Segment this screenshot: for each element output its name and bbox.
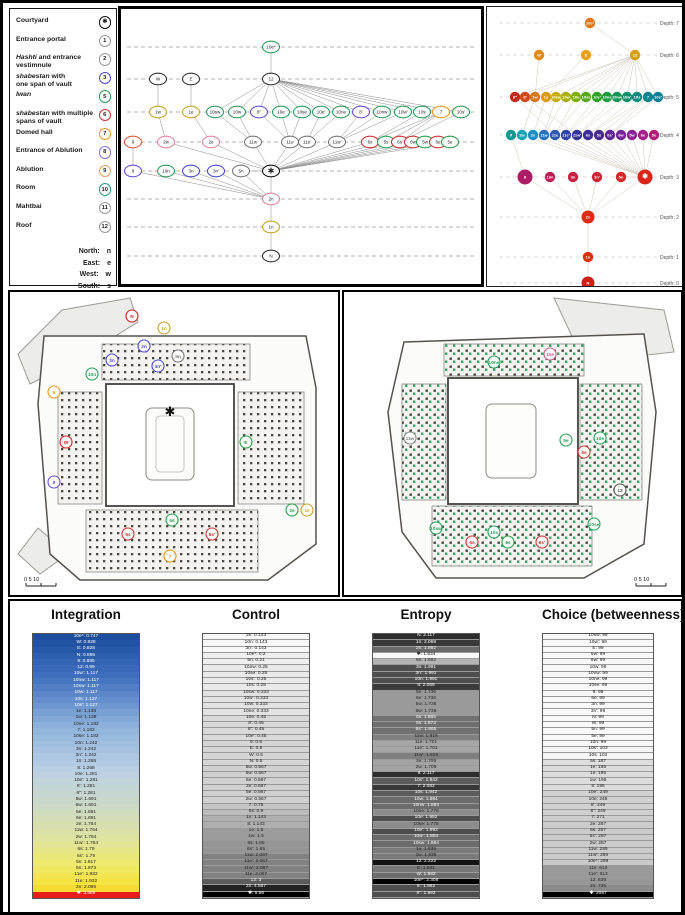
graph-node-10e: 10e [273, 106, 290, 118]
legend-item: Mahtbai11 [16, 202, 111, 221]
legend-item-symbol: 11 [99, 202, 112, 215]
graph-node-5w: 5w [627, 130, 637, 140]
graph-node-8: 8 [518, 170, 533, 185]
graph-node-5s: 5s [594, 130, 604, 140]
entropy-title: Entropy [372, 607, 480, 622]
svg-text:6e: 6e [581, 450, 587, 456]
legend-item: Domed hall7 [16, 128, 111, 147]
graph-node-8'': 8″ [510, 92, 520, 102]
graph-node-3n: 3n [568, 172, 578, 182]
graph-node-11e': 11e′ [561, 130, 571, 140]
svg-text:7: 7 [169, 554, 172, 560]
graph-node-10w: 10w [561, 92, 571, 102]
graph-node-3n': 3n′ [592, 172, 602, 182]
legend-item-symbol: ✱ [99, 16, 112, 29]
legend-item-symbol: 1 [99, 35, 112, 48]
graph-node-10w': 10w′ [622, 92, 632, 102]
floor-plan-upper-drawing: 11e10ne11w5e6e10e1210s6s5s6s′10sw10se 0 … [344, 292, 680, 594]
graph-node-2n: 2n [582, 211, 595, 224]
legend-items: Courtyard✱Entrance portal1Hashti and ent… [16, 16, 111, 239]
plan-label-3n': 3n′ [152, 360, 164, 372]
graph-node-10s': 10s′ [653, 92, 663, 102]
graph-node-10n: 10n [158, 165, 175, 177]
svg-text:10w′: 10w′ [398, 110, 407, 115]
table-row: 8″: 1.992 [373, 892, 479, 898]
legend-item-symbol: 2 [99, 53, 112, 66]
legend-item-label: Domed hall [16, 128, 53, 137]
legend-item: Iwan5 [16, 90, 111, 109]
plan-label-6s: 6s [122, 528, 134, 540]
svg-text:3n′: 3n′ [155, 364, 163, 370]
svg-text:6s′: 6s′ [539, 540, 546, 546]
svg-text:10w: 10w [233, 110, 242, 115]
svg-text:6e: 6e [435, 140, 441, 145]
graph-node-2e: 2e [528, 130, 538, 140]
plan-label-2n: 2n [138, 340, 150, 352]
graph-node-10e*: 10e* [263, 41, 280, 53]
graph-node-10s': 10s′ [453, 106, 470, 118]
graph-node-1w: 1w [530, 92, 540, 102]
legend-item-label: shabestan with one span of vault [16, 72, 72, 89]
legend-item-symbol: 3 [99, 72, 112, 85]
svg-text:8′: 8′ [523, 95, 526, 100]
graph-node-1w: 1w [150, 106, 167, 118]
legend-item: Room10 [16, 183, 111, 202]
svg-text:10nw: 10nw [377, 110, 389, 115]
graph-node-11e: 11e [282, 136, 299, 148]
svg-text:✱: ✱ [165, 404, 176, 419]
legend-item-symbol: 9 [99, 165, 112, 178]
plan-hall-south [432, 506, 592, 566]
legend-item: Courtyard✱ [16, 16, 111, 35]
plan-label-1n: 1n [158, 322, 170, 334]
integration-table: 10e*: 0.747W: 0.828E: 0.828N: 0.8959: 0.… [32, 633, 140, 899]
plan-label-5e: 5e [560, 434, 572, 446]
control-table: 3n: 0.14310n: 0.1433n′: 0.14310e*: 0.25n… [202, 633, 310, 899]
graph-node-9: 9 [125, 136, 142, 148]
svg-text:6s: 6s [368, 140, 374, 145]
control-column: Control 3n: 0.14310n: 0.1433n′: 0.14310e… [202, 607, 310, 899]
graph-node-11w': 11w′ [572, 130, 582, 140]
svg-text:6s: 6s [469, 540, 475, 546]
tables-panel: Integration 10e*: 0.747W: 0.828E: 0.828N… [8, 599, 683, 914]
graph-node-10w': 10w′ [395, 106, 412, 118]
graph-node-11e: 11e [550, 130, 560, 140]
svg-text:10w′: 10w′ [623, 95, 632, 100]
graph-node-1n: 1n [583, 252, 593, 262]
graph-node-5n: 5n [616, 172, 626, 182]
graph-node-3n': 3n′ [208, 165, 225, 177]
graph-node-10e': 10e′ [313, 106, 330, 118]
control-title: Control [202, 607, 310, 622]
svg-text:6s′: 6s′ [397, 140, 403, 145]
graph-node-11w: 11w [245, 136, 262, 148]
legend-item-symbol: 12 [99, 221, 112, 234]
svg-text:10w: 10w [562, 95, 570, 100]
svg-text:10e: 10e [277, 110, 285, 115]
table-row: ✱: 2087 [543, 892, 653, 898]
legend-item: Entrance portal1 [16, 35, 111, 54]
plan-label-10ne: 10ne [488, 356, 500, 368]
svg-text:E: E [189, 77, 192, 82]
graph-node-10ne: 10ne [333, 106, 350, 118]
svg-text:3n: 3n [188, 169, 194, 174]
graph-node-6s: 6s [362, 136, 379, 148]
svg-text:2e: 2e [289, 508, 295, 514]
svg-text:2e: 2e [208, 140, 214, 145]
plan-label-6s': 6s′ [536, 536, 548, 548]
plan-label-5n: 5n [172, 350, 184, 362]
svg-text:5s: 5s [597, 133, 602, 138]
svg-text:11w′: 11w′ [573, 133, 581, 138]
svg-text:10ne: 10ne [336, 110, 347, 115]
graph-node-10se: 10se [294, 106, 311, 118]
graph-node-10nw: 10nw [374, 106, 391, 118]
graph-node-6w: 6w [616, 130, 626, 140]
svg-text:Depth: 1: Depth: 1 [660, 255, 679, 261]
plan-label-E: E [240, 436, 252, 448]
plan-label-11e: 11e [544, 348, 556, 360]
svg-text:Depth: 0: Depth: 0 [660, 281, 679, 286]
plan-scale-text: 0 5 10 [634, 577, 649, 583]
plan-label-N: N [126, 310, 138, 322]
figure-root: Courtyard✱Entrance portal1Hashti and ent… [0, 0, 685, 915]
legend-item-label: Entrance portal [16, 35, 66, 44]
plan-label-10se: 10se [588, 518, 600, 530]
svg-text:8′: 8′ [359, 110, 363, 115]
plan-label-10s: 10s [488, 526, 500, 538]
choice-column: Choice (betweenness) 10sw: 9910w′: 99E: … [542, 607, 654, 899]
svg-text:10s: 10s [634, 95, 641, 100]
svg-text:11e′: 11e′ [562, 133, 569, 138]
svg-text:5n: 5n [619, 175, 624, 180]
graph-node-5e: 5e [649, 130, 659, 140]
svg-text:10e′: 10e′ [593, 95, 601, 100]
svg-text:11e′: 11e′ [303, 140, 311, 145]
svg-text:6s: 6s [586, 133, 591, 138]
svg-text:5s: 5s [169, 518, 175, 524]
svg-text:10sw: 10sw [430, 526, 442, 532]
depth-graph-panel: Depth: 7Depth: 6Depth: 5Depth: 4Depth: 3… [486, 6, 685, 287]
svg-text:6s′: 6s′ [209, 532, 216, 538]
graph-node-W: W [150, 73, 167, 85]
svg-text:2w: 2w [519, 133, 525, 138]
svg-text:10sw: 10sw [210, 110, 221, 115]
legend-item-label: Iwan [16, 90, 31, 99]
graph-node-11w: 11w [539, 130, 549, 140]
graph-node-10sw: 10sw [207, 106, 224, 118]
svg-text:5e: 5e [652, 133, 657, 138]
svg-text:11e: 11e [552, 133, 559, 138]
svg-text:6s: 6s [125, 532, 131, 538]
plan-label-9: 9 [48, 386, 60, 398]
plan-label-3n: 3n [106, 354, 118, 366]
graph-node-5e: 5e [442, 136, 459, 148]
svg-text:Depth: 6: Depth: 6 [660, 53, 679, 59]
graph-node-7: 7 [433, 106, 450, 118]
svg-text:3n′: 3n′ [594, 175, 600, 180]
svg-text:6s′: 6s′ [607, 133, 612, 138]
legend-item: Roof12 [16, 221, 111, 240]
svg-text:6w: 6w [410, 140, 417, 145]
graph-node-8: 8 [125, 165, 142, 177]
table-row: ✱: 3.689 [33, 892, 139, 898]
plan-label-1e: 1e [301, 504, 313, 516]
graph-node-7: 7 [643, 92, 653, 102]
legend-direction: North:n [16, 246, 111, 258]
plan-label-8: 8 [48, 476, 60, 488]
graph-node-E: E [183, 73, 200, 85]
svg-text:W: W [156, 77, 161, 82]
integration-title: Integration [32, 607, 140, 622]
graph-node-5n: 5n [233, 165, 250, 177]
choice-table: 10sw: 9910w′: 99E: 995w: 996w: 9910w: 99… [542, 633, 654, 899]
svg-text:12: 12 [268, 77, 274, 82]
legend-item-label: Courtyard [16, 16, 48, 25]
svg-text:5w: 5w [629, 133, 635, 138]
plan-label-5s: 5s [166, 514, 178, 526]
legend-item: Entrance of Ablution8 [16, 146, 111, 165]
svg-text:10se: 10se [589, 522, 600, 528]
graph-node-8'': 8″ [251, 106, 268, 118]
svg-text:10n: 10n [162, 169, 170, 174]
svg-text:5e: 5e [447, 140, 453, 145]
svg-text:5e: 5e [563, 438, 569, 444]
legend-item-label: Mahtbai [16, 202, 42, 211]
plan-scale-bar: 0 5 10 [24, 577, 56, 586]
svg-text:N: N [587, 281, 590, 286]
graph-node-10e': 10e′ [592, 92, 602, 102]
svg-text:9: 9 [132, 140, 135, 145]
graph-node-6s': 6s′ [605, 130, 615, 140]
svg-text:6e: 6e [641, 133, 646, 138]
graph-node-12: 12 [630, 50, 640, 60]
graph-node-3n: 3n [183, 165, 200, 177]
plan-label-2e: 2e [286, 504, 298, 516]
svg-text:Depth: 7: Depth: 7 [660, 21, 679, 27]
plan-hall-north [444, 344, 584, 376]
graph-node-9: 9 [506, 130, 516, 140]
svg-text:1e: 1e [188, 110, 194, 115]
svg-text:E: E [585, 53, 588, 58]
plan-label-12: 12 [614, 484, 626, 496]
svg-text:W: W [537, 53, 541, 58]
plan-label-6s: 6s [466, 536, 478, 548]
graph-node-E: E [581, 50, 591, 60]
svg-text:10e*: 10e* [586, 21, 595, 26]
svg-text:10se: 10se [582, 95, 592, 100]
graph-node-N: N [263, 250, 280, 262]
floor-plan-ground: N1n2n3n3n′10n5n9W8✱E2e1e5s6s6s′7 0 5 10 [8, 290, 340, 597]
integration-column: Integration 10e*: 0.747W: 0.828E: 0.828N… [32, 607, 140, 899]
legend-item-label: Ablution [16, 165, 44, 174]
graph-node-6e: 6e [638, 130, 648, 140]
graph-node-N: N [582, 277, 595, 287]
svg-text:10e′: 10e′ [317, 110, 326, 115]
svg-text:1e: 1e [544, 95, 549, 100]
legend-item-label: Hashti and entrance vestimnule [16, 53, 97, 70]
graph-node-*: ✱ [638, 170, 653, 185]
svg-text:10s′: 10s′ [457, 110, 465, 115]
graph-node-2w: 2w [158, 136, 175, 148]
graph-node-2n: 2n [263, 193, 280, 205]
legend-direction: West:w [16, 269, 111, 281]
svg-text:10e: 10e [596, 436, 604, 442]
svg-text:5s: 5s [384, 140, 390, 145]
choice-title: Choice (betweenness) [542, 607, 654, 622]
plan-pool [486, 404, 536, 478]
svg-text:11w: 11w [540, 133, 548, 138]
legend-direction: East:e [16, 258, 111, 270]
graph-node-12: 12 [263, 73, 280, 85]
svg-text:10ne: 10ne [602, 95, 612, 100]
svg-text:3n: 3n [571, 175, 576, 180]
svg-text:10e: 10e [573, 95, 580, 100]
plan-label-11w: 11w [404, 432, 416, 444]
plan-label-W: W [60, 436, 72, 448]
svg-text:10ne: 10ne [489, 360, 500, 366]
svg-text:✱: ✱ [268, 167, 275, 176]
svg-text:11w: 11w [406, 436, 415, 442]
svg-text:6w: 6w [618, 133, 624, 138]
graph-node-*: ✱ [263, 165, 280, 177]
svg-text:3n′: 3n′ [213, 169, 219, 174]
legend-item-symbol: 8 [99, 146, 112, 159]
svg-text:N: N [130, 314, 134, 320]
svg-text:8″: 8″ [257, 110, 262, 115]
svg-text:7: 7 [440, 110, 443, 115]
svg-text:1n: 1n [586, 255, 591, 260]
graph-node-2w: 2w [517, 130, 527, 140]
graph-node-10nw: 10nw [612, 92, 623, 102]
graph-node-2e: 2e [203, 136, 220, 148]
svg-text:10sw: 10sw [551, 95, 562, 100]
svg-text:10e*: 10e* [266, 45, 276, 50]
svg-text:11e: 11e [286, 140, 294, 145]
svg-text:10s: 10s [490, 530, 498, 536]
svg-text:1w: 1w [155, 110, 162, 115]
svg-text:1n: 1n [268, 225, 274, 230]
graph-node-10se: 10se [581, 92, 591, 102]
plan-label-10e: 10e [594, 432, 606, 444]
graph-node-11e': 11e′ [299, 136, 316, 148]
graph-node-1e: 1e [541, 92, 551, 102]
legend-item-symbol: 5 [99, 90, 112, 103]
svg-text:1w: 1w [532, 95, 538, 100]
svg-text:10s′: 10s′ [654, 95, 662, 100]
svg-text:2n: 2n [586, 215, 591, 220]
legend-panel: Courtyard✱Entrance portal1Hashti and ent… [9, 8, 117, 286]
floor-plan-ground-drawing: N1n2n3n3n′10n5n9W8✱E2e1e5s6s6s′7 0 5 10 [10, 292, 337, 594]
svg-text:3n: 3n [109, 358, 115, 364]
svg-text:11w: 11w [249, 140, 258, 145]
legend-item: shabestan with one span of vault3 [16, 72, 111, 91]
svg-text:10s: 10s [418, 110, 426, 115]
graph-node-1n: 1n [263, 221, 280, 233]
svg-text:✱: ✱ [642, 173, 648, 181]
svg-text:8″: 8″ [513, 95, 517, 100]
legend-item-label: Room [16, 183, 35, 192]
svg-text:5w: 5w [422, 140, 429, 145]
legend-item: shabestan with multiple spans of vault6 [16, 109, 111, 128]
legend-item-symbol: 6 [99, 109, 112, 122]
svg-text:12: 12 [633, 53, 638, 58]
graph-node-10s: 10s [632, 92, 642, 102]
graph-node-10s: 10s [414, 106, 431, 118]
table-row: ✱: 5.56 [203, 892, 309, 898]
graph-node-10e*: 10e* [585, 18, 595, 28]
graph-node-11w': 11w′ [329, 136, 346, 148]
svg-text:Depth: 3: Depth: 3 [660, 175, 679, 181]
svg-text:Depth: 2: Depth: 2 [660, 215, 679, 221]
svg-text:5s: 5s [505, 540, 511, 546]
legend-item-label: Roof [16, 221, 31, 230]
plan-label-6e: 6e [578, 446, 590, 458]
plan-label-6s': 6s′ [206, 528, 218, 540]
legend-item-symbol: 7 [99, 128, 112, 141]
svg-text:11w′: 11w′ [333, 140, 342, 145]
legend-item: Hashti and entrance vestimnule2 [16, 53, 111, 72]
svg-text:N: N [269, 254, 272, 259]
svg-text:2e: 2e [531, 133, 536, 138]
svg-text:10se: 10se [297, 110, 307, 115]
justified-graph: 10e*WE121w1e10sw10w8″10e10se10e′10ne8′10… [121, 9, 481, 284]
svg-text:W: W [64, 440, 69, 446]
floor-plan-upper: 11e10ne11w5e6e10e1210s6s5s6s′10sw10se 0 … [342, 290, 683, 597]
plan-hall-east [580, 384, 642, 500]
legend-item-label: Entrance of Ablution [16, 146, 83, 155]
plan-label-5s: 5s [502, 536, 514, 548]
svg-text:8: 8 [132, 169, 135, 174]
svg-text:5n: 5n [238, 169, 244, 174]
legend-item-symbol: 10 [99, 183, 112, 196]
svg-text:2n: 2n [268, 197, 274, 202]
plan-label-7: 7 [164, 550, 176, 562]
svg-text:10n: 10n [547, 175, 554, 180]
plan-label-10sw: 10sw [430, 522, 442, 534]
legend-item: Ablution9 [16, 165, 111, 184]
svg-text:12: 12 [617, 488, 623, 494]
entropy-table: N: 2.1171n: 2.0692n: 1.892✱: 1.5345n: 1.… [372, 633, 480, 899]
svg-text:2n: 2n [141, 344, 147, 350]
svg-text:2w: 2w [163, 140, 170, 145]
graph-node-6s: 6s [583, 130, 593, 140]
graph-node-W: W [534, 50, 544, 60]
legend-directions: North:nEast:eWest:wSouth:s [16, 246, 111, 292]
graph-node-10sw: 10sw [551, 92, 562, 102]
svg-text:8: 8 [53, 480, 56, 486]
entropy-column: Entropy N: 2.1171n: 2.0692n: 1.892✱: 1.5… [372, 607, 480, 899]
graph-node-1e: 1e [183, 106, 200, 118]
svg-text:11e: 11e [546, 352, 554, 358]
svg-text:1e: 1e [304, 508, 310, 514]
plan-label-10n: 10n [86, 368, 98, 380]
depth-graph: Depth: 7Depth: 6Depth: 5Depth: 4Depth: 3… [487, 7, 684, 286]
svg-text:Depth: 4: Depth: 4 [660, 133, 679, 139]
svg-text:10nw: 10nw [612, 95, 623, 100]
graph-node-10e: 10e [571, 92, 581, 102]
graph-node-10n: 10n [545, 172, 555, 182]
plan-scale-text: 0 5 10 [24, 577, 39, 583]
svg-text:10n: 10n [88, 372, 96, 378]
justified-graph-panel: 10e*WE121w1e10sw10w8″10e10se10e′10ne8′10… [118, 6, 484, 287]
plan-scale-bar: 0 5 10 [634, 577, 666, 586]
graph-node-10ne: 10ne [602, 92, 613, 102]
graph-node-8': 8′ [353, 106, 370, 118]
graph-node-8': 8′ [520, 92, 530, 102]
legend-item-label: shabestan with multiple spans of vault [16, 109, 93, 126]
plan-label-*: ✱ [165, 404, 176, 419]
